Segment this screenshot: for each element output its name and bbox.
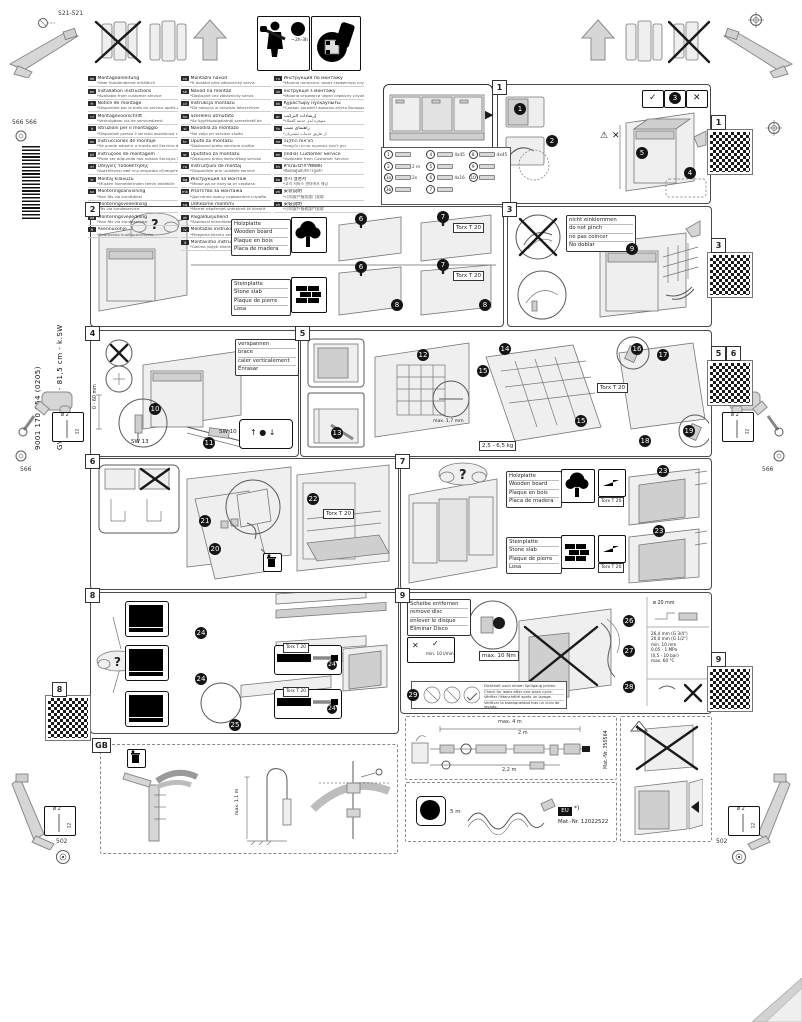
parts-list-item: 10 — [469, 173, 508, 182]
bracket-detail-box — [598, 469, 626, 497]
torx-label: Torx T 20 — [598, 563, 624, 573]
step-circle: 23 — [657, 465, 669, 477]
clock-icon — [289, 20, 307, 38]
standpipe-height: max. 1,1 m — [235, 789, 240, 815]
panel-3: nicht einklemmen do not pinch ne pas coi… — [507, 206, 712, 327]
label-verspannen: verspannen — [238, 341, 296, 349]
panel-8-number: 8 — [85, 588, 100, 603]
language-note: *Disponibile prin unităţile service — [190, 169, 271, 173]
language-note: *可向客戶服務部門索取 — [283, 207, 364, 211]
language-note: *Müşteri hizmetlerinden temin edilebilir — [97, 182, 178, 186]
drill-spec-box-right: ø 2 12 — [722, 412, 754, 442]
step-circle: 10 — [149, 403, 161, 415]
step-circle: 7 — [437, 259, 449, 271]
label-plaque-en-bois: Plaque en bois — [509, 490, 559, 498]
parts-list-item: 8 4x45 — [469, 150, 508, 159]
step-circle: 21 — [199, 515, 211, 527]
language-code-badge: he — [274, 139, 282, 144]
drill-spec-box-bottom-left: ø 2 12 — [44, 806, 76, 836]
bricks-icon — [292, 278, 324, 310]
flow-check-box: ✕ ✓ min. 10 l/min — [407, 637, 455, 663]
language-code-badge: fa — [274, 126, 282, 131]
kitchen-overview-box — [383, 84, 493, 156]
language-entry: enInstallation instructions *Available f… — [88, 89, 178, 100]
label-caler: caler verticalement — [238, 358, 296, 366]
language-note: *متوفرة لدى خدمة العملاء — [283, 119, 364, 123]
standpipe-sketch — [239, 759, 295, 845]
language-note: *ניתן להשיג באמצעות שירות הלקוחות — [283, 144, 364, 148]
language-entry: svMonteringsanvisning *Kan fås via kundt… — [88, 189, 178, 200]
bricks-icon-box — [291, 277, 327, 313]
stone-label-box: Steinplatte Stone slab Plaque de pierre … — [506, 537, 562, 574]
dispose-icon-box — [263, 553, 282, 572]
step-circle: 29 — [407, 689, 419, 701]
language-code-badge: ar — [274, 114, 282, 119]
part-icon — [437, 152, 453, 157]
label-enrasar: Enrasar — [238, 366, 296, 373]
drill-depth: 12 — [751, 823, 756, 829]
language-entry: zh安裝說明 *可向客戶服務部門索取 — [274, 202, 364, 213]
label-eliminar-disco: Eliminar Disco — [410, 626, 468, 633]
hose-part-number: Mat.-Nr. 350564 — [604, 730, 609, 769]
language-entry: frNotice de montage *Disponible par le b… — [88, 101, 178, 112]
language-note: *Se puede adquirir a través del Servicio… — [97, 144, 178, 148]
drill-diameter: ø 2 — [53, 806, 61, 812]
language-entry: ruИнструкция по монтажу *Можно получить … — [274, 76, 364, 87]
language-code-badge: kk — [274, 101, 282, 106]
cross-icon: ✕ — [412, 641, 419, 650]
label-plaque-en-bois: Plaque en bois — [234, 238, 288, 246]
svg-text:?: ? — [459, 468, 467, 483]
part-icon — [437, 187, 453, 192]
language-note: *Dostupno preko servisne službe — [190, 144, 271, 148]
label-wooden-board: Wooden board — [509, 481, 559, 489]
step-circle: 8 — [479, 299, 491, 311]
wrench-size-sw13: SW 13 — [131, 439, 149, 445]
parts-list-item: 3a 2x — [384, 173, 423, 182]
language-entry: elΟδηγίες τοποθέτησης *Διατίθενται από τ… — [88, 164, 178, 175]
bricks-icon-box — [561, 535, 595, 569]
step-circle: 15 — [575, 415, 587, 427]
hose-upper-length: 2 m — [518, 730, 528, 736]
hose-lower-length: 2,2 m — [502, 767, 516, 773]
label-holzplatte: Holzplatte — [234, 221, 288, 229]
language-entry: faراهنمای نصب *از طریق خدمات مشتریان — [274, 126, 364, 137]
language-note: *Може да се получи от сервиза — [190, 182, 271, 186]
part-label: 2x — [412, 175, 417, 180]
language-code-badge: el — [88, 164, 96, 169]
language-code-badge: ru — [274, 76, 282, 81]
torx-label: Torx T 20 — [598, 497, 624, 507]
registration-mark — [14, 128, 28, 147]
socket-icon — [416, 796, 446, 826]
panel-6: 21 20 22 Torx T 20 — [90, 458, 399, 590]
step-circle: 28 — [623, 681, 635, 693]
language-note: *Na voljo pri servisni službi — [190, 132, 271, 136]
label-wooden-board: Wooden board — [234, 229, 288, 237]
door-balance-box: ↑ ● ↓ — [239, 419, 293, 449]
step-circle: 26 — [623, 615, 635, 627]
flow-rate-label: min. 10 l/min — [426, 651, 454, 656]
part-number: 4 — [426, 150, 435, 159]
language-note: *über Kundendienst erhältlich — [97, 81, 178, 85]
hose-extension-box: max. 4 m 2 m 2,2 m Mat.-Nr. 350564 — [405, 716, 617, 780]
step-circle: 6 — [355, 213, 367, 225]
language-code-badge: zh — [274, 189, 282, 194]
step-circle: 20 — [209, 543, 221, 555]
language-code-badge: pt — [88, 152, 96, 157]
gap-dimension: max. 1,7 mm — [433, 419, 464, 424]
language-code-badge: lv — [181, 227, 189, 232]
qr-step-8-number: 8 — [52, 682, 67, 697]
step-circle: 14 — [499, 343, 511, 355]
panel-1: ✓ ✕ ⚠ ✕ 1 2 3 4 5 — [497, 84, 711, 204]
caulk-gun-icon — [8, 26, 88, 82]
part-number: 8 — [469, 150, 478, 159]
language-entry: sqUdhëzime montimi *Merret nëpërmjet shë… — [181, 202, 271, 213]
language-code-badge: ko — [274, 177, 282, 182]
part-icon — [437, 164, 453, 169]
scan-qr-box — [311, 16, 361, 71]
language-code-badge: sq — [181, 202, 189, 207]
label-remove-disc: remove disc — [410, 609, 468, 617]
panel-4: verspannen brace caler verticalement Enr… — [90, 330, 299, 457]
torque-label: max. 10 Nm — [479, 651, 519, 661]
cabinet-variant-box — [125, 645, 169, 681]
wood-label-box: Holzplatte Wooden board Plaque en bois P… — [506, 471, 562, 508]
step-circle: 19 — [683, 425, 695, 437]
language-note: *از طریق خدمات مشتریان — [283, 132, 364, 136]
part-number: 3a — [384, 173, 393, 182]
cabinet-variant-box — [125, 601, 169, 637]
no-hands-icon: ✕ — [612, 131, 620, 141]
barcode — [22, 146, 40, 220]
language-entry: nlMontagevoorschrift *Verkrijgbaar via d… — [88, 114, 178, 125]
language-entry: roInstrucţiuni de montaj *Disponibile pr… — [181, 164, 271, 175]
label-enlever-le-disque: enlever le disque — [410, 618, 468, 626]
left-width-dimension: 566 566 — [12, 119, 37, 126]
language-entry: bgИнструкция за монтаж *Може да се получ… — [181, 177, 271, 188]
panel-9: Scheibe entfernen remove disc enlever le… — [400, 592, 712, 714]
top-width-dimension: 521-521 — [58, 10, 83, 17]
qr-step-5-number: 5 — [711, 346, 726, 361]
dispose-icon-box — [127, 749, 146, 768]
step-circle: 8 — [391, 299, 403, 311]
language-code-badge: mk — [181, 189, 189, 194]
asterisk-note: *) — [574, 805, 579, 812]
cross-icon: ✕ — [693, 93, 701, 103]
step-circle: 11 — [203, 437, 215, 449]
step-circle: 7 — [437, 211, 449, 223]
part-icon — [395, 152, 411, 157]
panel-weight-label: 2,5 - 6,5 kg — [479, 441, 516, 451]
brace-label-box: verspannen brace caler verticalement Enr… — [235, 339, 299, 376]
qr-code-step-9 — [708, 667, 752, 711]
language-code-badge: fi — [88, 227, 96, 232]
language-note: *Можна отримати через сервісну службу — [283, 94, 364, 98]
wrench-size-sw10: SW 10 — [219, 429, 237, 435]
panel-7: ? Holzplatte Wooden board Plaque en bois… — [400, 458, 712, 590]
side-dimension-left: 566 — [20, 466, 31, 473]
language-code-badge: pl — [181, 101, 189, 106]
drain-diameter-label: ø 20 mm — [653, 601, 674, 606]
part-icon — [479, 175, 495, 180]
label-do-not-pinch: do not pinch — [569, 225, 633, 233]
drill-depth: 12 — [67, 823, 72, 829]
language-note: *可向客户服务部门索取 — [283, 195, 364, 199]
door-balance-icon: ↑ ● ↓ — [250, 428, 275, 437]
language-entry: trMontaj kılavuzu *Müşteri hizmetlerinde… — [88, 177, 178, 188]
language-code-badge: sk — [181, 89, 189, 94]
language-code-badge: lt — [181, 240, 189, 245]
language-entry: ko설치 설명서 *고객 서비스 센터에서 제공 — [274, 177, 364, 188]
disc-label-box: Scheibe entfernen remove disc enlever le… — [407, 599, 471, 636]
label-brace: brace — [238, 349, 296, 357]
parts-list-item: 9 — [469, 162, 508, 171]
language-note: *Az ügyfélszolgálatnál szerezhető be — [190, 119, 271, 123]
panel-4-number: 4 — [85, 326, 100, 341]
warning-icon: ⚠ — [600, 131, 608, 141]
torx-label: Torx T 20 — [283, 687, 309, 697]
language-note: *고객 서비스 센터에서 제공 — [283, 182, 364, 186]
language-note: *Disponibili presso il servizio assisten… — [97, 132, 178, 136]
language-entry: itIstruzioni per il montaggio *Disponibi… — [88, 126, 178, 137]
parts-list-item: 6 4x16 — [426, 173, 465, 182]
manual-page: 521-521 ~2h-3h 566 566 9 — [0, 0, 802, 1022]
language-code-badge: es — [88, 139, 96, 144]
language-entry: huSzerelési útmutató *Az ügyfélszolgálat… — [181, 114, 271, 125]
trash-bin-icon — [128, 750, 143, 765]
adjust-detail-box: Torx T 20 24 — [274, 645, 342, 675]
part-number: 6 — [426, 173, 435, 182]
step-circle: 4 — [684, 167, 696, 179]
torx-label: Torx T 20 — [453, 223, 484, 233]
leak-check-text: Dichtheit nach einem Spülgang prüfen. Ch… — [484, 684, 564, 710]
step-circle: 15 — [477, 365, 489, 377]
step-circle: 12 — [417, 349, 429, 361]
gb-drain-section: max. 1,1 m — [100, 744, 398, 854]
part-icon — [479, 152, 495, 157]
language-entry: srUputstvo za montažu *Dostupno preko ko… — [181, 152, 271, 163]
panel-5: 12 13 14 15 15 16 17 18 19 max. 1,7 mm T… — [300, 330, 712, 457]
part-number: 5 — [426, 162, 435, 171]
label-steinplatte: Steinplatte — [234, 281, 288, 289]
drill-spec-box-bottom-right: ø 2 12 — [728, 806, 760, 836]
bottom-dimension-right: 502 — [716, 838, 727, 845]
language-entry: esInstrucciones de montaje *Se puede adq… — [88, 139, 178, 150]
registration-mark — [766, 120, 782, 140]
tree-icon — [292, 218, 324, 250]
check-icon: ✓ — [432, 639, 439, 648]
rail-ok-box: ✓ — [642, 90, 664, 108]
parts-list-item: 2 2 m — [384, 162, 423, 171]
language-note: *Available from Customer Service — [283, 157, 364, 161]
panel-stack-icon — [622, 16, 666, 70]
drill-diameter: ø 2 — [737, 806, 745, 812]
label-steinplatte: Steinplatte — [509, 539, 559, 547]
coiled-cable-icon — [462, 791, 558, 835]
language-entry: arإرشادات التركيب *متوفرة لدى خدمة العمل… — [274, 114, 364, 125]
part-icon — [479, 164, 495, 169]
part-icon — [437, 175, 453, 180]
language-code-badge: bg — [181, 177, 189, 182]
adjust-detail-box: Torx T 20 24 — [274, 689, 342, 719]
part-number: 1 — [384, 150, 393, 159]
panel-5-number: 5 — [295, 326, 310, 341]
label-losa: Losa — [509, 564, 559, 571]
label-losa: Losa — [234, 306, 288, 313]
registration-mark — [772, 448, 786, 467]
language-entry: zh安装说明 *可向客户服务部门索取 — [274, 189, 364, 200]
installer-time-box: ~2h-3h — [257, 16, 310, 71]
step-circle: 13 — [331, 427, 343, 439]
cord-length: 5 m — [450, 809, 461, 815]
language-code-badge: uk — [274, 89, 282, 94]
torx-label: Torx T 20 — [283, 643, 309, 653]
step-circle: 17 — [657, 349, 669, 361]
registration-mark — [54, 848, 72, 870]
tree-icon-box — [291, 217, 327, 253]
qr-code-step-1 — [708, 130, 752, 174]
language-note: *Fås via kundeservice — [97, 207, 178, 211]
parts-list-item: 1 — [384, 150, 423, 159]
language-code-badge: hr — [181, 139, 189, 144]
gb-section-badge: GB — [92, 738, 111, 753]
language-code-badge: en — [274, 152, 282, 157]
part-number: 2 — [384, 162, 393, 171]
language-note: *Можно получить через сервисную службу — [283, 81, 364, 85]
part-icon — [395, 187, 411, 192]
torx-label: Torx T 20 — [323, 509, 354, 519]
language-note: *Saatavana huoltopalvelusta — [97, 233, 178, 237]
step-circle: 16 — [631, 343, 643, 355]
language-note: *Pode ser adquirido nos nossos Serviços … — [97, 157, 178, 161]
arrow-right-icon: ▶ — [485, 108, 493, 121]
hose-total-length: max. 4 m — [498, 719, 522, 725]
language-note: *Dostupno preko korisničkog servisa — [190, 157, 271, 161]
parts-list-box: 1 2 2 m 3a 2x 3b — [381, 147, 511, 205]
panel-3-number: 3 — [502, 202, 517, 217]
panel-2-number: 2 — [85, 202, 100, 217]
panel-8: ? 24 24 25 Torx T 20 24 Torx T 20 24 — [90, 592, 399, 734]
language-list-col1: deMontageanleitung *über Kundendienst er… — [88, 76, 178, 240]
parts-list-item: 5 — [426, 162, 465, 171]
language-entry: heהוראות התקנה *ניתן להשיג באמצעות שירות… — [274, 139, 364, 150]
part-label: 4x45 — [497, 152, 507, 157]
language-code-badge: zh — [274, 202, 282, 207]
language-entry: ukІнструкція з монтажу *Можна отримати ч… — [274, 89, 364, 100]
part-icon — [395, 175, 411, 180]
language-note: *Διατίθενται από την υπηρεσία εξυπηρέτησ… — [97, 169, 178, 173]
panel-7-number: 7 — [395, 454, 410, 469]
language-code-badge: en — [88, 89, 96, 94]
page-fold-corner — [752, 978, 802, 1022]
label-no-doblar: No doblar — [569, 242, 633, 249]
tree-icon-box — [561, 469, 595, 503]
registration-mark — [14, 448, 28, 467]
language-entry: ptInstruções de montagem *Pode ser adqui… — [88, 152, 178, 163]
arrow-up-icon — [190, 16, 230, 68]
no-panel-icon — [666, 16, 712, 70]
step-circle: 6 — [355, 261, 367, 273]
parts-list-item: 3b — [384, 185, 423, 194]
drill-spec-box-left: ø 2 12 — [52, 412, 84, 442]
bracket-detail-box — [598, 535, 626, 563]
qr-step-1-number: 1 — [711, 115, 726, 130]
language-code-badge: et — [181, 215, 189, 220]
language-note: *K dostání přes zákaznický servis — [190, 81, 271, 85]
leak-line-es: Verificar la estanqueidad tras un ciclo … — [484, 701, 564, 710]
region-badge: EU — [558, 807, 572, 816]
language-entry: thคำแนะนำการติดตั้ง *ติดต่อศูนย์บริการลู… — [274, 164, 364, 175]
trash-bin-icon — [264, 554, 279, 569]
language-code-badge: cs — [181, 76, 189, 81]
language-note: *Kan fås via kundeservice — [97, 220, 178, 224]
qr-step-9-number: 9 — [711, 652, 726, 667]
part-label: 2 m — [412, 164, 420, 169]
language-code-badge: fr — [88, 101, 96, 106]
qr-code-step-3 — [708, 253, 752, 297]
step-circle: 25 — [229, 719, 241, 731]
language-note: *Merret nëpërmjet shërbimit të klientit — [190, 207, 271, 211]
language-entry: skNávod na montáž *Dostupné cez zákazníc… — [181, 89, 271, 100]
language-entry: plInstrukcja montażu *Do nabycia w serwi… — [181, 101, 271, 112]
bricks-icon — [562, 536, 592, 566]
sink-hook-sketch — [309, 753, 393, 845]
language-entry: fiAsennusohje *Saatavana huoltopalvelust… — [88, 227, 178, 238]
step-circle: 24 — [195, 627, 207, 639]
language-list-col3: ruИнструкция по монтажу *Можно получить … — [274, 76, 364, 215]
language-code-badge: it — [88, 126, 96, 131]
step-circle: 24 — [327, 704, 337, 714]
language-code-badge: nl — [88, 114, 96, 119]
step-circle: 1 — [514, 103, 526, 115]
panel-6-number: 6 — [85, 454, 100, 469]
parts-list: 1 2 2 m 3a 2x 3b — [382, 148, 510, 196]
svg-text:?: ? — [114, 655, 121, 669]
label-plaque-de-pierre: Plaque de pierre — [234, 298, 288, 306]
carry-warning-box: ! — [620, 716, 712, 842]
part-label: 4x45 — [454, 152, 464, 157]
language-note: *Disponible par le biais du service aprè… — [97, 106, 178, 110]
registration-mark — [730, 848, 748, 870]
language-entry: daMonteringsvejledning *Kan fås via kund… — [88, 215, 178, 226]
feet-range-dimension: 0 - 60 mm — [93, 384, 98, 409]
label-scheibe-entfernen: Scheibe entfernen — [410, 601, 468, 609]
time-estimate: ~2h-3h — [291, 38, 308, 43]
language-code-badge: ro — [181, 164, 189, 169]
qr-code-steps-5-6 — [708, 361, 752, 405]
registration-mark — [748, 12, 764, 32]
no-panel-icon — [92, 16, 144, 70]
language-entry: noMonteringsveiledning *Fås via kundeser… — [88, 202, 178, 213]
power-cord-box: 5 m EU *) Mat.-Nr. 12022522 — [405, 782, 617, 842]
label-placa-de-madera: Placa de madera — [509, 498, 559, 505]
language-note: *Verkrijgbaar via de servicedienst — [97, 119, 178, 123]
part-number: 7 — [426, 185, 435, 194]
water-connection-specs: 26,4 mm (G 3/4") 20,0 mm (G 1/2") min. 1… — [651, 631, 707, 663]
caulk-gun-icon — [714, 26, 794, 82]
tree-icon — [562, 470, 592, 500]
language-note: *Достапно преку сервисната служба — [190, 195, 271, 199]
panel-9-number: 9 — [395, 588, 410, 603]
part-label: 4x16 — [454, 175, 464, 180]
phone-qr-icon — [312, 17, 358, 68]
check-icon: ✓ — [649, 93, 657, 103]
language-code-badge: de — [88, 76, 96, 81]
language-note: *Dostupné cez zákaznícky servis — [190, 94, 271, 98]
language-entry: deMontageanleitung *über Kundendienst er… — [88, 76, 178, 87]
